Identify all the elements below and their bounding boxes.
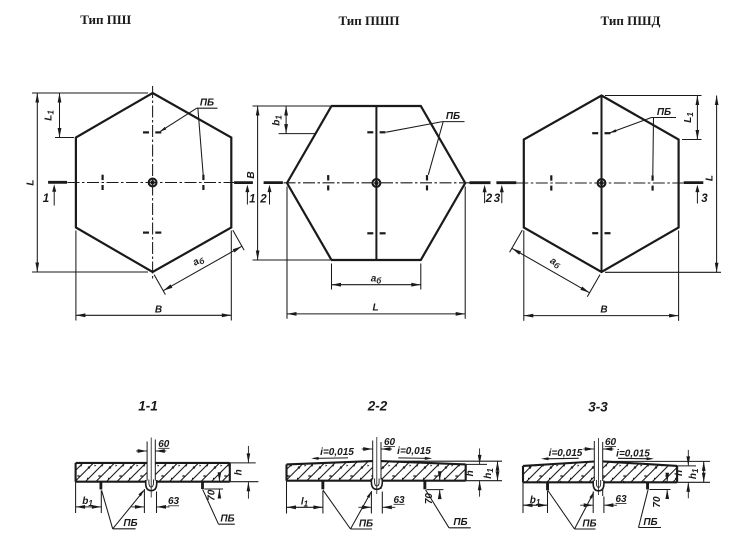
- svg-text:1: 1: [43, 193, 49, 205]
- svg-text:B: B: [246, 171, 257, 178]
- svg-text:B: B: [600, 305, 607, 316]
- svg-text:ПБ: ПБ: [657, 107, 671, 118]
- svg-text:ПБ: ПБ: [359, 518, 373, 529]
- svg-text:3: 3: [701, 193, 708, 205]
- svg-text:h: h: [674, 470, 685, 476]
- svg-text:1: 1: [249, 193, 255, 205]
- svg-text:ПБ: ПБ: [643, 517, 657, 528]
- svg-text:2: 2: [485, 193, 493, 205]
- svg-text:ПБ: ПБ: [220, 514, 234, 525]
- svg-text:3-3: 3-3: [588, 400, 608, 415]
- svg-text:L: L: [704, 175, 715, 181]
- svg-text:2: 2: [259, 194, 267, 206]
- svg-text:h: h: [234, 469, 245, 475]
- svg-text:70: 70: [652, 496, 663, 508]
- svg-text:ПБ: ПБ: [200, 98, 214, 109]
- svg-text:70: 70: [206, 489, 217, 501]
- svg-text:Тип ПШП: Тип ПШП: [338, 13, 399, 28]
- svg-text:Тип ПШ: Тип ПШ: [80, 12, 132, 27]
- svg-text:i=0,015: i=0,015: [549, 448, 583, 459]
- svg-text:ПБ: ПБ: [123, 518, 137, 529]
- svg-text:3: 3: [494, 193, 501, 205]
- svg-text:2-2: 2-2: [367, 399, 388, 414]
- svg-text:h: h: [465, 470, 476, 476]
- svg-text:ПБ: ПБ: [582, 518, 596, 529]
- svg-text:B: B: [155, 304, 162, 315]
- svg-text:Тип ПШД: Тип ПШД: [601, 13, 661, 28]
- svg-text:i=0,015: i=0,015: [320, 447, 354, 458]
- svg-text:L: L: [26, 179, 37, 185]
- svg-text:ПБ: ПБ: [453, 517, 467, 528]
- svg-text:L: L: [372, 303, 378, 314]
- svg-text:ПБ: ПБ: [446, 111, 460, 122]
- svg-text:1-1: 1-1: [138, 399, 158, 414]
- svg-text:i=0,015: i=0,015: [397, 446, 431, 457]
